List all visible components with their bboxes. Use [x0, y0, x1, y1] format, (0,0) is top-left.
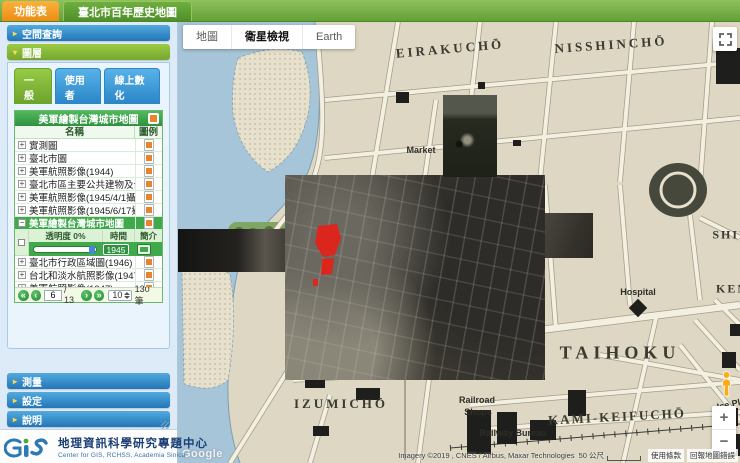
org-name-en: Center for GIS, RCHSS, Academia Sinica	[58, 452, 208, 459]
layer-name: 台北和淡水航照影像(1947)	[29, 268, 135, 282]
collapse-icon[interactable]: −	[18, 219, 26, 227]
map-label: Hospital	[620, 287, 656, 297]
map-label: Market	[406, 145, 435, 155]
layer-table: 美軍繪製台灣城市地圖 名稱 圖例 +實測圖+臺北市圖+美軍航照影像(1944)+…	[14, 110, 163, 303]
map-label: Railway Bureau	[479, 428, 546, 438]
chevron-right-icon: ▸	[13, 377, 17, 386]
layer-group-header: 美軍繪製台灣城市地圖	[15, 111, 162, 126]
terms-link[interactable]: 使用條款	[648, 449, 684, 462]
zoom-control: + −	[712, 406, 736, 454]
map-attribution: Imagery ©2019 , CNES / Airbus, Maxar Tec…	[398, 449, 738, 462]
map-view-tabs: 地圖 衛星檢視 Earth	[183, 25, 355, 49]
prev-page-button[interactable]: ‹	[31, 290, 42, 301]
intro-label: 簡介	[135, 230, 162, 242]
expand-icon[interactable]: +	[18, 193, 26, 201]
map-label: Shops	[464, 407, 492, 417]
group-legend-icon[interactable]	[148, 113, 159, 124]
layer-name: 美軍繪製台灣城市地圖	[29, 216, 135, 230]
layer-tabs: 一般 使用者 線上數化	[14, 68, 163, 104]
section-help[interactable]: ▸ 說明	[7, 411, 170, 427]
layer-name: 美軍航照影像(1947)	[29, 281, 135, 287]
section-spatial-query[interactable]: ▸ 空間查詢	[7, 25, 170, 41]
expand-icon[interactable]: +	[18, 206, 26, 214]
layer-visibility-checkbox[interactable]	[18, 239, 25, 246]
layer-column-headers: 名稱 圖例	[15, 126, 162, 139]
map-label: Railroad	[459, 395, 495, 405]
fullscreen-button[interactable]	[713, 27, 737, 51]
aerial-photo-strip-left	[178, 229, 287, 272]
map-label: KEN	[716, 282, 740, 297]
legend-icon[interactable]	[144, 269, 154, 281]
expand-icon[interactable]: +	[18, 284, 26, 287]
pagination: « ‹ / 13 › » 10 130 筆	[15, 287, 162, 302]
chevron-down-icon: ▾	[13, 48, 17, 57]
layer-table-body: +實測圖+臺北市圖+美軍航照影像(1944)+臺北市區主要公共建物及公園+美軍航…	[15, 139, 162, 287]
aerial-photo-small-right	[545, 213, 593, 258]
pegman-icon[interactable]	[719, 371, 734, 402]
map-label: IZUMICHŌ	[294, 396, 388, 412]
section-layers[interactable]: ▾ 圖層	[7, 44, 170, 60]
tab-user[interactable]: 使用者	[55, 68, 102, 104]
section-measure[interactable]: ▸ 測量	[7, 373, 170, 389]
layer-image-button[interactable]	[137, 244, 151, 255]
layer-name: 臺北市圖	[29, 151, 135, 165]
layer-panel: 一般 使用者 線上數化 美軍繪製台灣城市地圖 名稱 圖例 +實測圖+臺北市圖+美…	[7, 62, 170, 349]
view-tab-earth[interactable]: Earth	[302, 25, 355, 49]
page-input[interactable]	[44, 290, 62, 301]
legend-cell	[135, 165, 162, 177]
layer-name: 美軍航照影像(1945/6/17攝)	[29, 203, 135, 217]
opacity-slider[interactable]	[33, 246, 97, 253]
menu-tab[interactable]: 功能表	[2, 1, 59, 21]
expand-icon[interactable]: +	[18, 258, 26, 266]
logo-area: 地理資訊科學研究專題中心 Center for GIS, RCHSS, Acad…	[0, 429, 177, 463]
resize-handle[interactable]	[161, 421, 169, 429]
scale-label: 50 公尺	[579, 450, 604, 461]
total-pages: / 13	[64, 285, 78, 305]
page-size-select[interactable]: 10	[108, 290, 131, 301]
imagery-credit: Imagery ©2019 , CNES / Airbus, Maxar Tec…	[398, 451, 574, 460]
opacity-label: 透明度 0%	[29, 230, 103, 242]
time-label: 時間	[103, 230, 135, 242]
spinner-icon	[124, 292, 130, 299]
top-bar: 功能表 臺北市百年歷史地圖	[0, 0, 740, 22]
red-highlight-polygons	[285, 175, 545, 380]
legend-cell	[135, 204, 162, 216]
gis-logo	[4, 433, 54, 461]
tab-general[interactable]: 一般	[14, 68, 52, 104]
layer-name: 臺北市行政區域圖(1946)	[29, 255, 135, 269]
zoom-in-button[interactable]: +	[712, 406, 736, 430]
org-name-zh: 地理資訊科學研究專題中心	[58, 435, 208, 451]
legend-icon[interactable]	[144, 256, 154, 268]
last-page-button[interactable]: »	[94, 290, 105, 301]
circular-park	[649, 163, 707, 217]
report-error-link[interactable]: 回報地圖錯誤	[687, 449, 738, 462]
layer-name: 臺北市區主要公共建物及公園	[29, 177, 135, 191]
aerial-photo-strip-top	[443, 95, 497, 177]
view-tab-satellite[interactable]: 衛星檢視	[231, 25, 302, 49]
section-settings[interactable]: ▸ 設定	[7, 392, 170, 408]
legend-cell	[135, 191, 162, 203]
legend-cell	[135, 269, 162, 281]
scale-control: 50 公尺	[579, 450, 641, 461]
legend-icon[interactable]	[144, 178, 154, 190]
column-name: 名稱	[15, 126, 135, 138]
legend-icon[interactable]	[144, 282, 154, 287]
legend-cell	[135, 217, 162, 229]
expand-icon[interactable]: +	[18, 167, 26, 175]
chevron-right-icon: ▸	[13, 29, 17, 38]
scale-bar	[607, 456, 641, 461]
legend-icon[interactable]	[144, 191, 154, 203]
slider-handle-icon[interactable]	[89, 246, 95, 254]
chevron-right-icon: ▸	[13, 396, 17, 405]
expand-icon[interactable]: +	[18, 180, 26, 188]
view-tab-map[interactable]: 地圖	[183, 25, 231, 49]
legend-cell	[135, 256, 162, 268]
legend-icon[interactable]	[144, 139, 154, 151]
legend-icon[interactable]	[144, 152, 154, 164]
map-canvas[interactable]: EIRAKUCHŌNISSHINCHŌMarketSHINKENHospital…	[178, 22, 740, 463]
legend-icon[interactable]	[144, 165, 154, 177]
legend-icon[interactable]	[144, 204, 154, 216]
first-page-button[interactable]: «	[18, 290, 29, 301]
layer-name: 美軍航照影像(1945/4/1攝)	[29, 190, 135, 204]
chevron-right-icon: ▸	[13, 415, 17, 424]
legend-icon[interactable]	[144, 217, 154, 229]
sidebar: ▸ 空間查詢 ▾ 圖層 一般 使用者 線上數化 美軍繪製台灣城市地圖 名稱 圖例…	[0, 22, 178, 463]
tab-online-digitize[interactable]: 線上數化	[104, 68, 160, 104]
legend-cell	[135, 178, 162, 190]
expand-icon[interactable]: +	[18, 141, 26, 149]
map-label: SHIN	[712, 228, 740, 243]
fullscreen-icon	[719, 33, 732, 46]
map-label: TAIHOKU	[560, 343, 681, 364]
layer-row[interactable]: −美軍繪製台灣城市地圖	[15, 217, 162, 230]
expand-icon[interactable]: +	[18, 271, 26, 279]
layer-name: 美軍航照影像(1944)	[29, 164, 135, 178]
layer-detail-panel: 透明度 0% 時間 簡介 1945	[15, 230, 162, 256]
app-title-tab[interactable]: 臺北市百年歷史地圖	[63, 1, 192, 21]
next-page-button[interactable]: ›	[81, 290, 92, 301]
legend-cell	[135, 139, 162, 151]
year-select[interactable]: 1945	[103, 244, 129, 255]
legend-cell	[135, 152, 162, 164]
column-legend: 圖例	[135, 126, 162, 138]
expand-icon[interactable]: +	[18, 154, 26, 162]
